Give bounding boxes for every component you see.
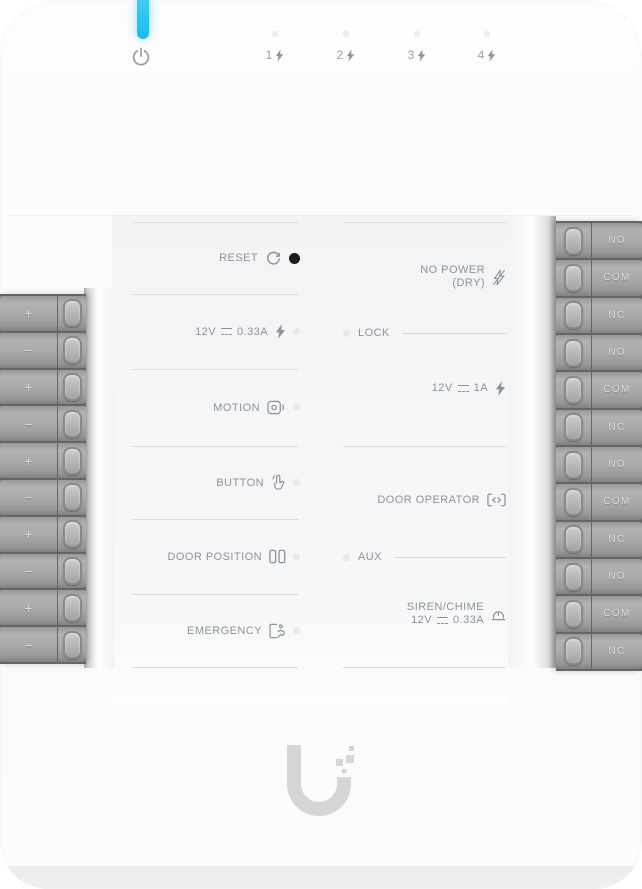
screw-well: [58, 594, 86, 622]
terminal-label: NO: [592, 347, 642, 358]
terminal: COM: [556, 260, 642, 295]
bolt-icon: [487, 49, 496, 62]
terminal: NO: [556, 335, 642, 370]
screw-well: [58, 336, 86, 364]
dc-symbol-icon: [220, 327, 233, 336]
no-power-bolt-icon: [492, 269, 506, 286]
terminal-label: −: [0, 637, 57, 653]
terminal: −: [0, 480, 86, 515]
screw-well: [556, 264, 591, 292]
screw-well: [556, 451, 591, 479]
indicator-dot: [343, 330, 350, 337]
emergency-row: EMERGENCY: [133, 594, 300, 667]
channel-4-led: [484, 31, 490, 37]
terminal-label: NC: [592, 534, 642, 545]
button-press-icon: [271, 474, 286, 491]
screw-terminal: [63, 299, 82, 327]
siren-label: SIREN/CHIME 12V 0.33A: [407, 601, 484, 628]
lock-power-row: 12V 1A: [343, 371, 506, 405]
lock-line: [402, 333, 506, 334]
terminal-label: −: [0, 342, 57, 358]
screw-well: [58, 631, 86, 659]
button-label: BUTTON: [216, 477, 264, 489]
terminal-label: +: [0, 379, 57, 395]
terminal: NO: [556, 223, 642, 258]
terminal-label: COM: [592, 608, 642, 619]
screw-terminal: [564, 413, 583, 441]
terminal: NC: [556, 298, 642, 333]
reset-button: [289, 253, 300, 264]
channel-1-led: [272, 31, 278, 37]
siren-power-label: 12V 0.33A: [411, 614, 484, 628]
button-row: BUTTON: [133, 446, 300, 519]
screw-well: [556, 227, 591, 255]
screw-terminal: [63, 483, 82, 511]
screw-terminal: [63, 447, 82, 475]
no-power-line2: (DRY): [452, 277, 485, 289]
indicator-dot: [293, 328, 300, 335]
door-operator-label: DOOR OPERATOR: [377, 494, 480, 506]
screw-well: [58, 373, 86, 401]
screw-terminal: [564, 525, 583, 553]
bolt-icon: [346, 49, 355, 62]
bolt-icon: [495, 381, 506, 396]
lock-row: LOCK: [343, 319, 506, 347]
screw-terminal: [564, 488, 583, 516]
ubiquiti-logo: [287, 745, 357, 817]
siren-line1: SIREN/CHIME: [407, 601, 484, 613]
screw-well: [556, 600, 591, 628]
terminal: NC: [556, 410, 642, 445]
lock-label: LOCK: [358, 327, 390, 339]
access-hub-device: 1 2 3 4 RESET 12V: [0, 0, 642, 889]
indicator-dot: [343, 554, 350, 561]
reset-icon: [265, 250, 282, 267]
door-position-icon: [269, 549, 286, 564]
screw-well: [556, 525, 591, 553]
power-icon: [130, 46, 152, 68]
screw-terminal: [63, 520, 82, 548]
bolt-icon: [275, 49, 284, 62]
screw-terminal: [564, 637, 583, 665]
screw-well: [556, 376, 591, 404]
terminal-label: −: [0, 416, 57, 432]
terminal: −: [0, 406, 86, 441]
indicator-dot: [293, 627, 300, 634]
screw-terminal: [63, 336, 82, 364]
screw-well: [58, 483, 86, 511]
screw-well: [58, 299, 86, 327]
channel-2-label: 2: [337, 48, 344, 62]
screw-well: [58, 520, 86, 548]
terminal-label: NO: [592, 235, 642, 246]
screw-terminal: [564, 451, 583, 479]
aux-power-label: 12V 0.33A: [195, 326, 268, 338]
screw-well: [556, 339, 591, 367]
terminal-label: NO: [592, 459, 642, 470]
left-terminal-block: +−+−+−+−+−: [0, 294, 86, 664]
terminal-label: −: [0, 489, 57, 505]
terminal: COM: [556, 372, 642, 407]
terminal: +: [0, 443, 86, 478]
screw-terminal: [63, 557, 82, 585]
no-power-label: NO POWER (DRY): [420, 264, 485, 291]
screw-well: [58, 557, 86, 585]
device-base: [0, 866, 642, 889]
current-text: 1A: [474, 382, 488, 394]
screw-well: [58, 410, 86, 438]
indicator-dot: [293, 479, 300, 486]
divider: [343, 222, 506, 223]
screw-terminal: [564, 339, 583, 367]
reset-label: RESET: [219, 252, 258, 264]
door-position-row: DOOR POSITION: [133, 519, 300, 594]
left-cable-groove: [84, 288, 114, 668]
terminal-label: NC: [592, 646, 642, 657]
terminal: COM: [556, 596, 642, 631]
terminal-label: +: [0, 453, 57, 469]
screw-well: [58, 447, 86, 475]
motion-label: MOTION: [213, 402, 260, 414]
current-text: 0.33A: [453, 614, 484, 628]
siren-chime-icon: [491, 607, 506, 621]
terminal: −: [0, 554, 86, 589]
bolt-icon: [275, 324, 286, 339]
motion-row: MOTION: [133, 369, 300, 446]
terminal: +: [0, 370, 86, 405]
screw-terminal: [564, 600, 583, 628]
dc-symbol-icon: [457, 384, 470, 393]
right-terminal-block: NOCOMNCNOCOMNCNOCOMNCNOCOMNC: [556, 221, 642, 671]
channel-4-indicator: 4: [472, 48, 502, 62]
door-position-label: DOOR POSITION: [168, 551, 262, 563]
terminal: NC: [556, 522, 642, 557]
voltage-text: 12V: [411, 614, 432, 628]
screw-well: [556, 413, 591, 441]
terminal: +: [0, 296, 86, 331]
terminal-label: −: [0, 563, 57, 579]
screw-terminal: [564, 227, 583, 255]
no-power-row: NO POWER (DRY): [343, 232, 506, 322]
channel-2-led: [343, 31, 349, 37]
screw-terminal: [63, 594, 82, 622]
terminal: −: [0, 333, 86, 368]
bolt-icon: [417, 49, 426, 62]
terminal-label: +: [0, 526, 57, 542]
terminal-label: NO: [592, 571, 642, 582]
terminal-label: +: [0, 600, 57, 616]
terminal-label: NC: [592, 422, 642, 433]
terminal: COM: [556, 484, 642, 519]
terminal: +: [0, 590, 86, 625]
door-operator-icon: [487, 493, 506, 507]
aux-power-row: 12V 0.33A: [133, 294, 300, 369]
screw-terminal: [63, 373, 82, 401]
aux-row: AUX: [343, 543, 506, 571]
siren-row: SIREN/CHIME 12V 0.33A: [343, 592, 506, 636]
channel-1-label: 1: [266, 48, 273, 62]
emergency-exit-icon: [269, 623, 286, 639]
channel-3-label: 3: [408, 48, 415, 62]
screw-well: [556, 563, 591, 591]
divider: [343, 446, 506, 447]
indicator-dot: [293, 553, 300, 560]
divider: [343, 667, 506, 668]
channel-4-label: 4: [478, 48, 485, 62]
terminal: +: [0, 517, 86, 552]
channel-3-led: [414, 31, 420, 37]
screw-terminal: [63, 631, 82, 659]
screw-terminal: [564, 376, 583, 404]
screw-terminal: [564, 563, 583, 591]
product-photo: 1 2 3 4 RESET 12V: [0, 0, 642, 889]
screw-terminal: [564, 301, 583, 329]
screw-well: [556, 488, 591, 516]
terminal-label: NC: [592, 310, 642, 321]
channel-3-indicator: 3: [402, 48, 432, 62]
current-text: 0.33A: [237, 326, 268, 338]
terminal: −: [0, 627, 86, 662]
indicator-dot: [293, 404, 300, 411]
terminal-label: COM: [592, 496, 642, 507]
divider: [133, 667, 298, 668]
aux-label: AUX: [358, 551, 382, 563]
aux-line: [394, 557, 506, 558]
voltage-text: 12V: [195, 326, 216, 338]
right-cable-groove: [508, 216, 556, 668]
terminal: NC: [556, 634, 642, 669]
terminal-label: COM: [592, 272, 642, 283]
door-operator-row: DOOR OPERATOR: [343, 483, 506, 517]
emergency-label: EMERGENCY: [187, 625, 262, 637]
terminal: NO: [556, 447, 642, 482]
no-power-line1: NO POWER: [420, 264, 485, 276]
voltage-text: 12V: [432, 382, 453, 394]
terminal: NO: [556, 559, 642, 594]
screw-terminal: [564, 264, 583, 292]
terminal-label: COM: [592, 384, 642, 395]
screw-well: [556, 637, 591, 665]
status-led: [137, 0, 149, 39]
motion-sensor-icon: [267, 400, 286, 415]
reset-row: RESET: [133, 222, 300, 294]
channel-1-indicator: 1: [260, 48, 290, 62]
screw-terminal: [63, 410, 82, 438]
lock-power-label: 12V 1A: [432, 382, 488, 394]
dc-symbol-icon: [436, 616, 449, 625]
terminal-label: +: [0, 305, 57, 321]
channel-2-indicator: 2: [331, 48, 361, 62]
screw-well: [556, 301, 591, 329]
